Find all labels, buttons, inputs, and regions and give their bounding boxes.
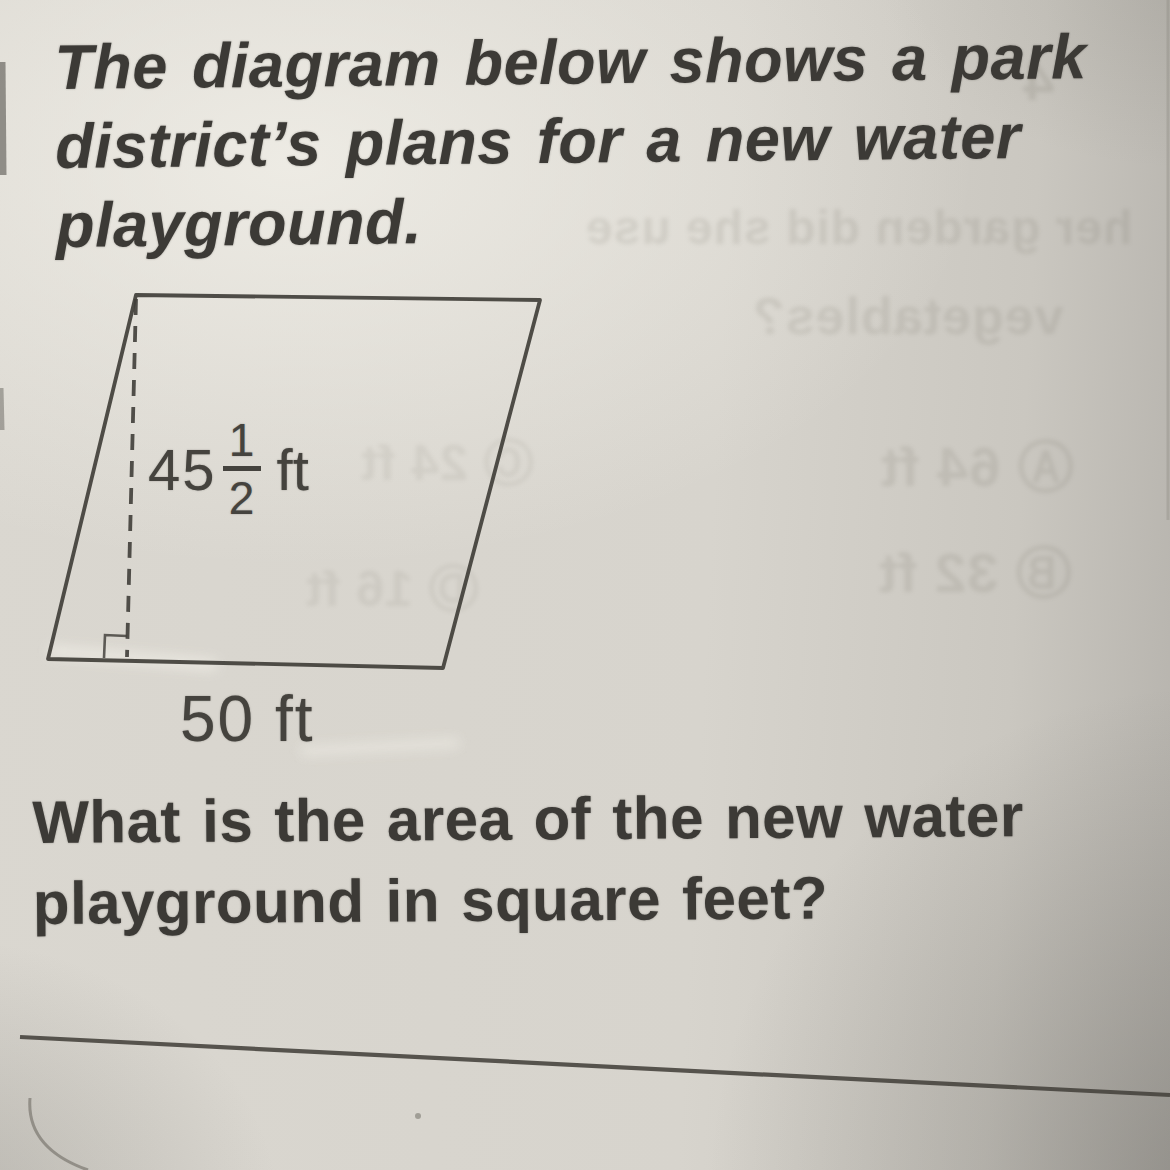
- height-label: 45 1 2 ft: [148, 416, 309, 523]
- height-fraction: 1 2: [223, 416, 261, 523]
- problem-statement-line: playground.: [56, 175, 1089, 265]
- question-text: What is the area of the new water playgr…: [32, 775, 1024, 944]
- question-line: What is the area of the new water: [32, 775, 1024, 863]
- base-label: 50 ft: [180, 682, 315, 756]
- ink-speck: [415, 1113, 421, 1119]
- height-whole-number: 45: [148, 436, 217, 503]
- problem-statement-line: The diagram below shows a park: [54, 17, 1087, 107]
- question-line: playground in square feet?: [33, 856, 1025, 944]
- photo-edge-artifact: [1, 388, 2, 430]
- photo-edge-artifact: [2, 62, 3, 175]
- height-dashed-line: [127, 299, 136, 657]
- answer-line: [20, 1037, 1170, 1095]
- problem-statement-line: district’s plans for a new water: [55, 96, 1088, 186]
- height-unit: ft: [277, 436, 309, 503]
- problem-statement: The diagram below shows a park district’…: [54, 17, 1089, 265]
- worksheet-photo: her garden did she use vegetables? Ⓐ 64 …: [0, 0, 1170, 1170]
- right-angle-icon: [104, 635, 127, 658]
- fraction-bar: [223, 466, 261, 471]
- fraction-numerator: 1: [229, 416, 255, 464]
- fraction-denominator: 2: [229, 473, 255, 523]
- pen-mark: [30, 1098, 88, 1170]
